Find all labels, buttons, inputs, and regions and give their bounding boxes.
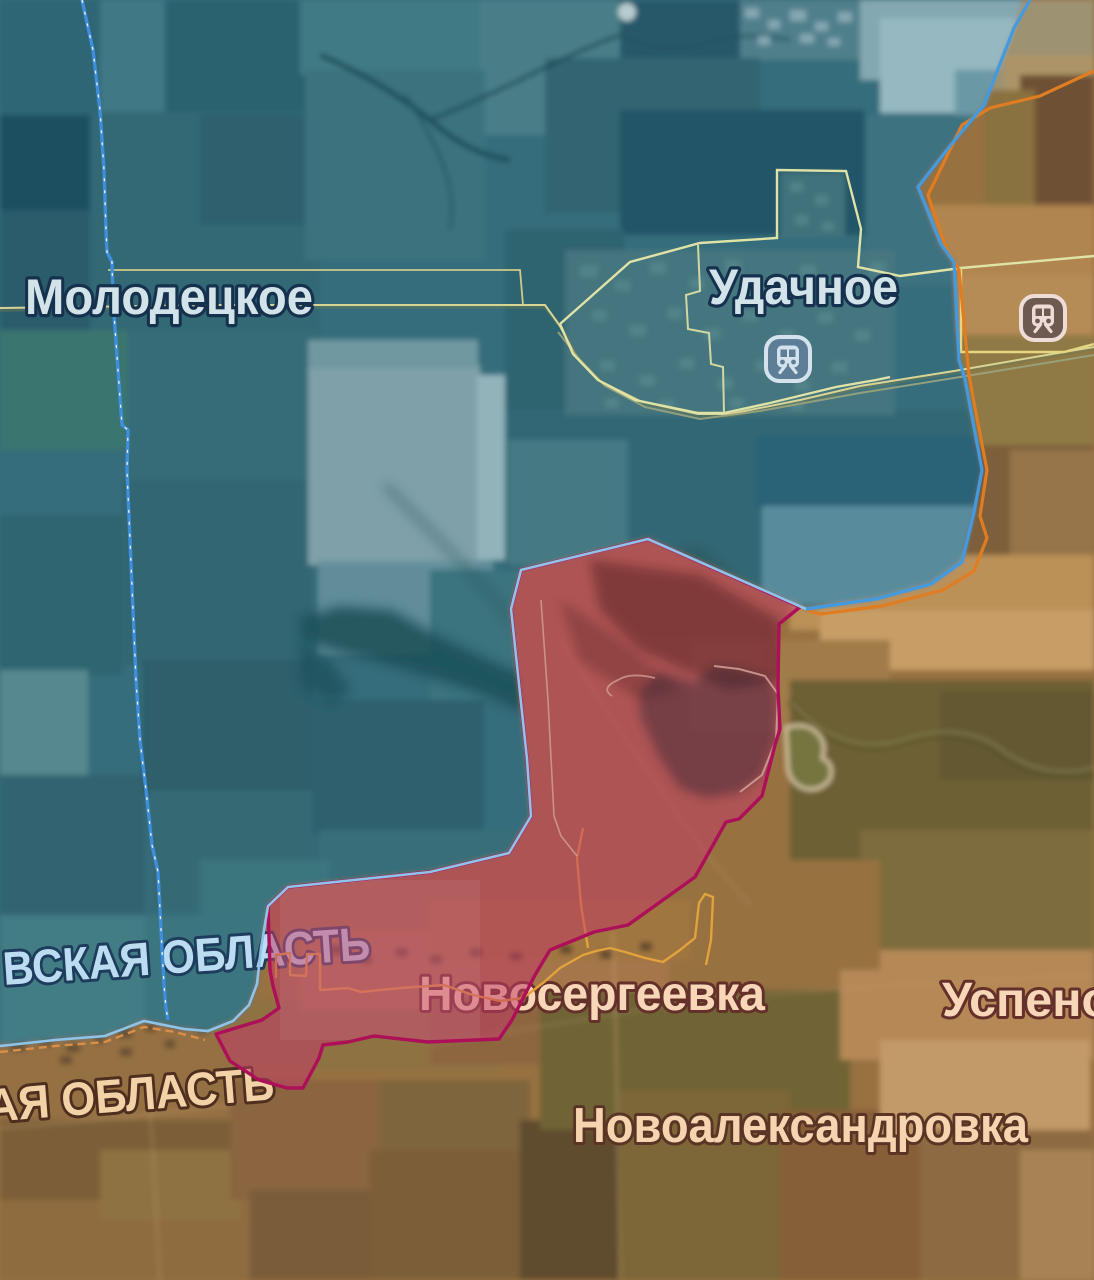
svg-text:Успеновка: Успеновка: [942, 974, 1094, 1027]
svg-text:Новоалександровка: Новоалександровка: [573, 1099, 1029, 1153]
svg-text:Молодецкое: Молодецкое: [25, 269, 313, 325]
svg-text:Удачное: Удачное: [709, 259, 898, 315]
